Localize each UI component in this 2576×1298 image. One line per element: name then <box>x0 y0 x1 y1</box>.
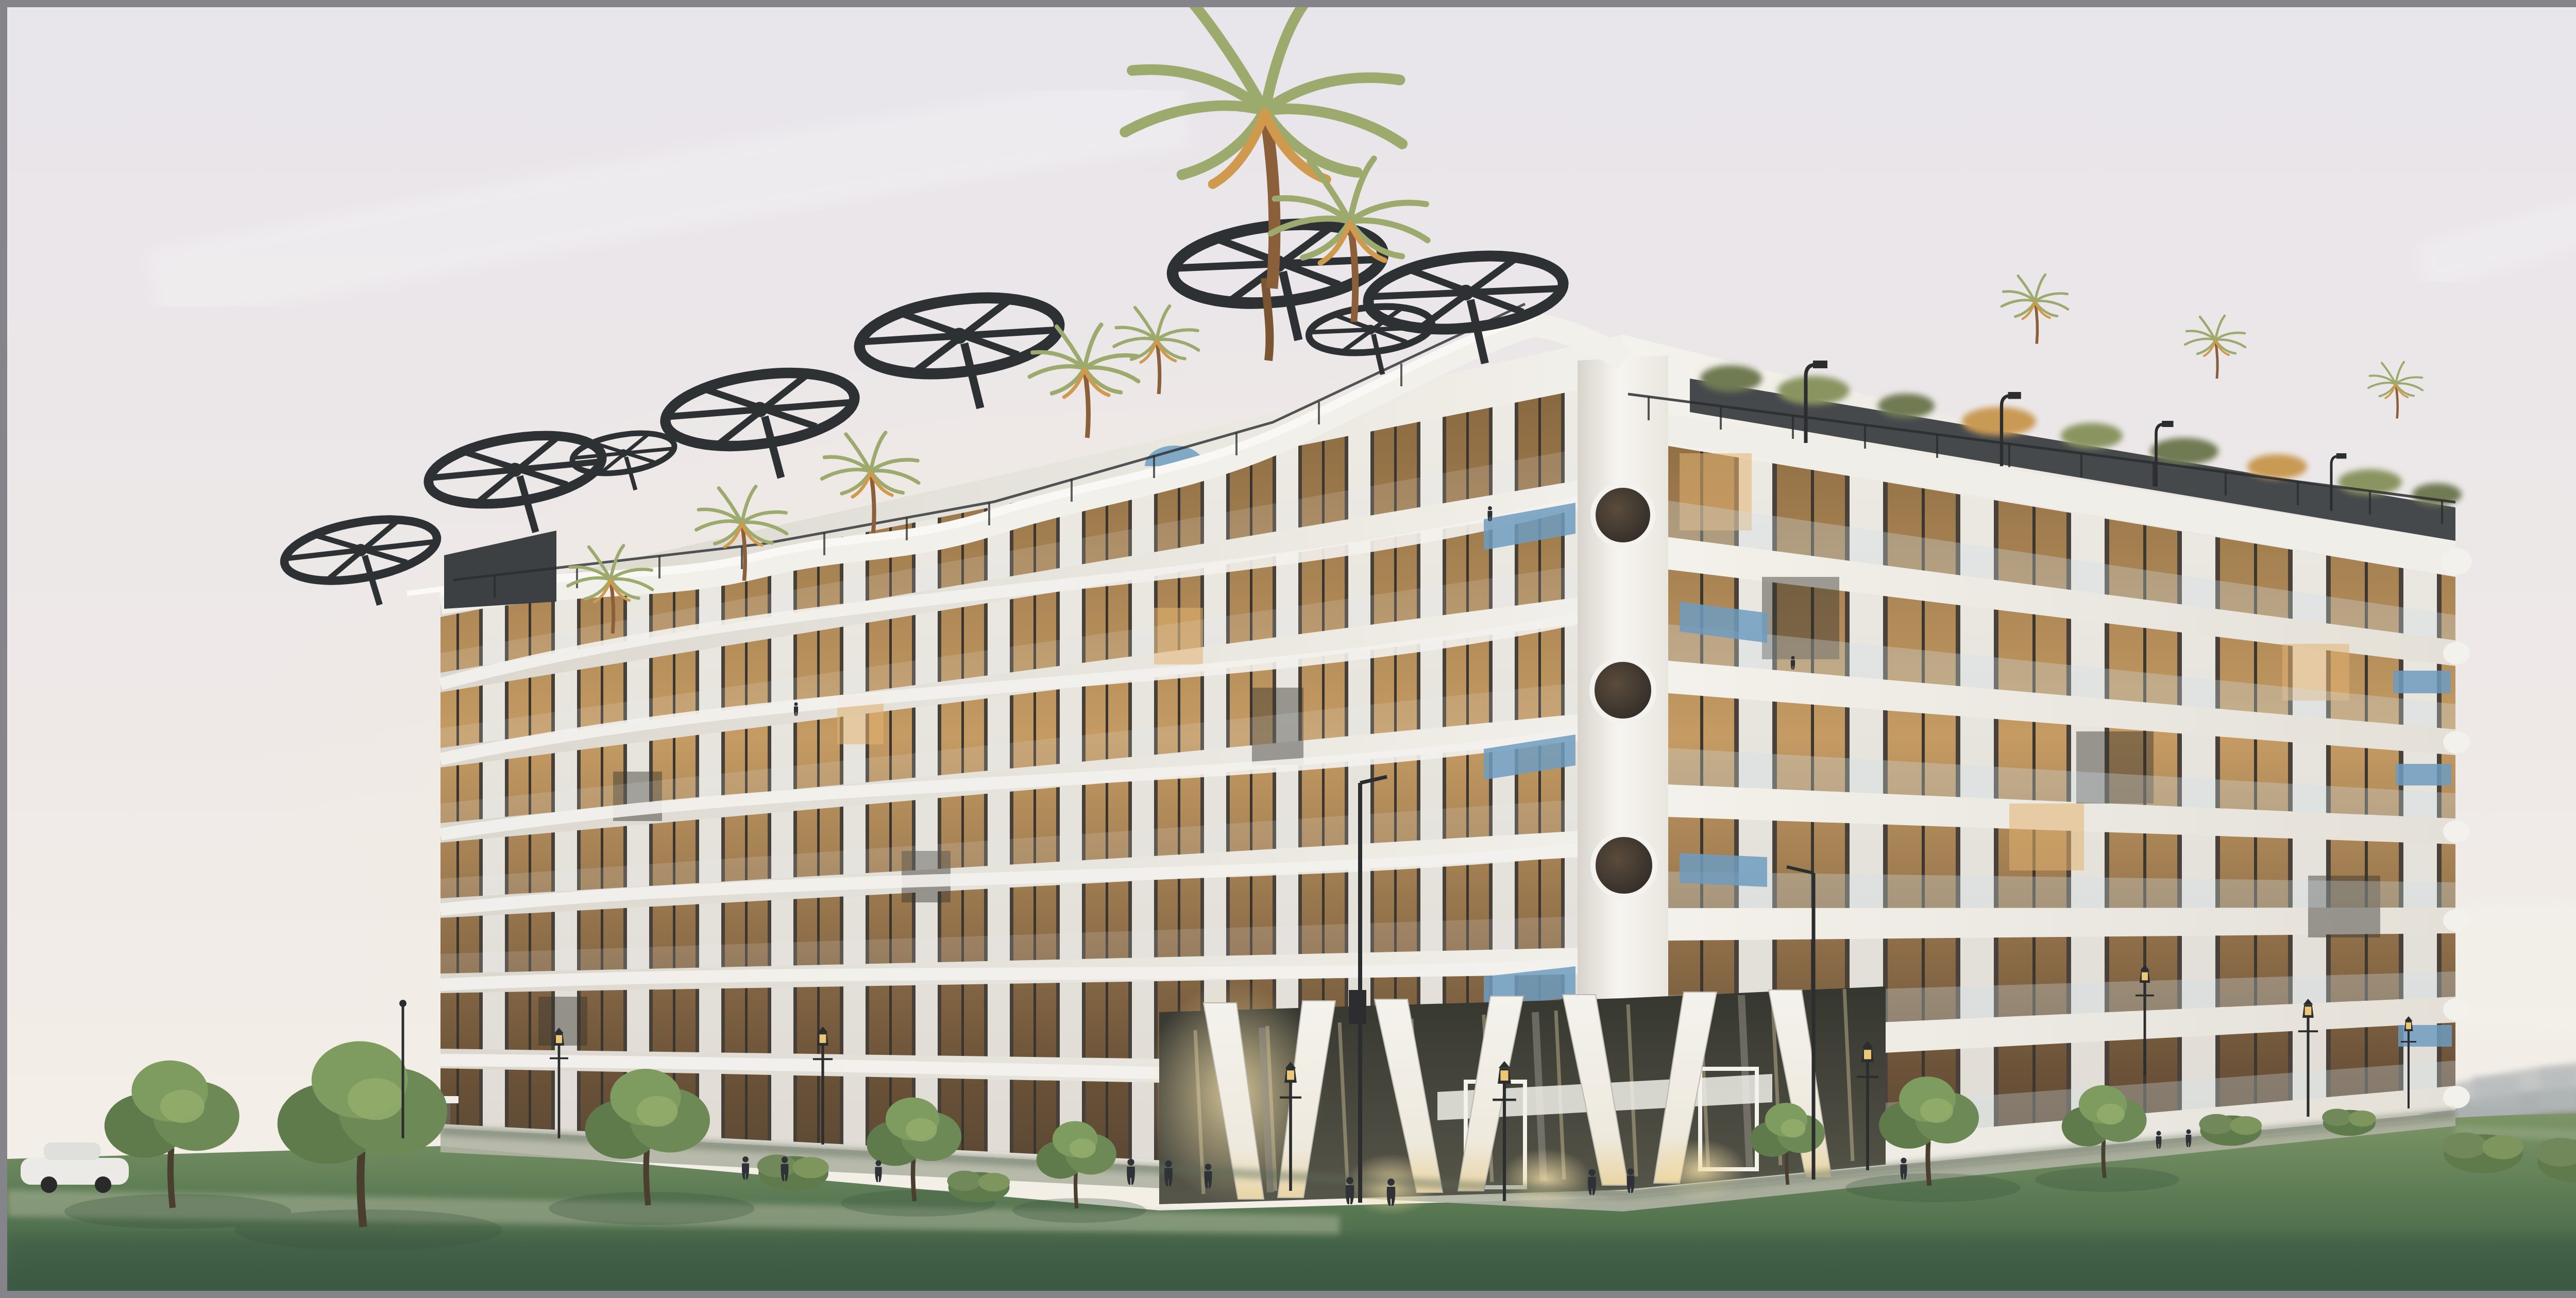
architectural-rendering <box>0 0 2576 1298</box>
palm-trunk <box>1265 278 1269 361</box>
